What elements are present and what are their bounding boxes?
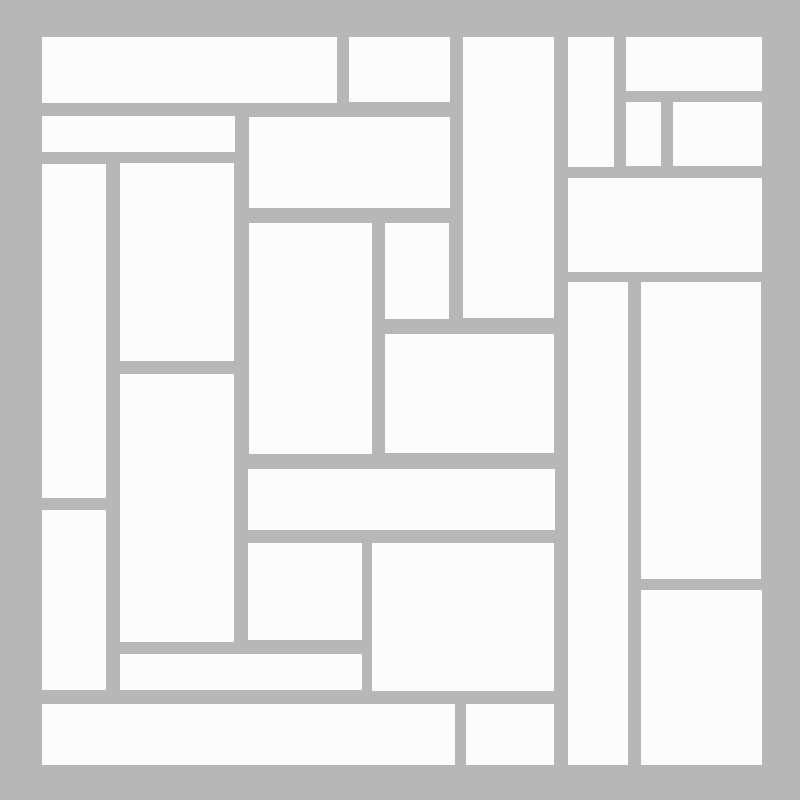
tile-bottom-thin-bar	[120, 654, 362, 690]
tile-left-thin-bar	[42, 116, 235, 152]
tile-top-narrow-column	[568, 37, 614, 167]
tile-upper-mid-tall	[463, 37, 554, 318]
tile-center-block	[385, 334, 554, 453]
tile-top-small	[349, 37, 450, 102]
tile-right-tall-block	[641, 282, 761, 579]
tile-lower-mid-small	[248, 543, 362, 640]
tile-left-tall-column	[42, 164, 106, 498]
tile-bottom-wide-bar	[42, 704, 455, 765]
tile-top-left-wide	[42, 37, 337, 103]
tile-lower-mid-block	[372, 543, 554, 691]
tile-right-small-square	[626, 102, 661, 166]
tile-right-long-column	[568, 282, 628, 765]
tile-bottom-right-block	[641, 590, 762, 765]
tile-lower-left-column	[120, 374, 234, 642]
tile-left-mid-column	[120, 163, 234, 361]
tile-center-wide-bar	[248, 469, 555, 530]
tile-top-right-wide	[626, 37, 762, 91]
mosaic-canvas	[0, 0, 800, 800]
tile-right-small-block	[673, 102, 762, 166]
tile-right-wide-block	[568, 178, 762, 272]
tile-left-lower-column	[42, 510, 106, 690]
tile-bottom-small-block	[466, 704, 554, 765]
tile-upper-mid-block	[249, 117, 450, 208]
tile-center-small-col	[385, 223, 449, 319]
tile-center-tall-block	[249, 223, 372, 454]
